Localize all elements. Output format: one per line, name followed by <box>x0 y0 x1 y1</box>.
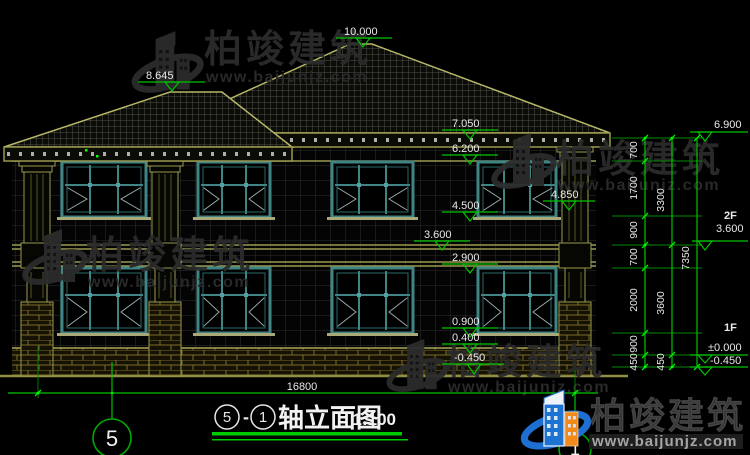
brand-logo-icon <box>131 31 204 96</box>
elevation-drawing-canvas: 柏竣建筑 www.baijunjz.com 柏竣建筑 www.baijunjz.… <box>0 0 750 455</box>
dim-label: 900 <box>628 335 640 353</box>
level-label: -0.450 <box>710 355 741 367</box>
dim-label: 7350 <box>680 246 692 270</box>
logo-wing <box>565 412 578 446</box>
level-label: 4.500 <box>452 200 480 212</box>
window <box>62 162 146 217</box>
title-underline-thick <box>212 432 402 436</box>
building-elevation <box>0 44 628 376</box>
watermark-url-text: www.baijunjz.com <box>87 274 250 291</box>
level-label: 6.900 <box>714 119 742 131</box>
brand-url-text: www.baijunjz.com <box>591 433 737 450</box>
level-label: 0.900 <box>452 316 480 328</box>
floor-tag: 1F <box>724 322 737 334</box>
dim-label: 700 <box>628 248 640 266</box>
window <box>332 162 413 217</box>
level-label: -0.450 <box>454 352 485 364</box>
total-width-label: 16800 <box>287 381 318 393</box>
level-label: 0.400 <box>452 332 480 344</box>
dim-label: 450 <box>655 353 667 371</box>
watermark-left: 柏竣建筑 www.baijunjz.com <box>22 229 254 291</box>
drawing-title: 5 - 1 轴立面图 1:100 <box>212 403 408 441</box>
watermark-bottom: 柏竣建筑 www.baijunjz.com <box>386 339 610 396</box>
title-underline-thin <box>212 439 408 441</box>
dim-label: 3600 <box>655 291 667 315</box>
title-scale: 1:100 <box>353 410 396 429</box>
level-label: 4.850 <box>551 189 579 201</box>
level-label: 3.600 <box>424 229 452 241</box>
level-label: 3.600 <box>716 223 744 235</box>
title-axis-a: 5 <box>223 409 231 426</box>
level-label: 7.050 <box>452 118 480 130</box>
watermark-brand-text: 柏竣建筑 <box>556 139 724 181</box>
level-label: ±0.000 <box>708 342 742 354</box>
watermark-url-text: www.baijunjz.com <box>205 69 368 86</box>
window <box>332 268 413 333</box>
cad-elevation-screenshot: 柏竣建筑 www.baijunjz.com 柏竣建筑 www.baijunjz.… <box>0 0 750 455</box>
level-label: 10.000 <box>344 26 378 38</box>
dim-label: 700 <box>628 141 640 159</box>
dim-label: 2000 <box>628 288 640 312</box>
floor-tag: 2F <box>724 210 737 222</box>
level-label: 2.900 <box>452 252 480 264</box>
title-axis-b: 1 <box>259 409 267 426</box>
watermark-brand-text: 柏竣建筑 <box>86 235 254 277</box>
level-label: 6.200 <box>452 143 480 155</box>
level-label: 8.645 <box>146 70 174 82</box>
watermark-right: 柏竣建筑 www.baijunjz.com <box>491 133 724 194</box>
window <box>198 162 270 217</box>
brand-name-text: 柏竣建筑 <box>590 395 746 436</box>
dim-label: 900 <box>628 221 640 239</box>
brand-logo-colored: 柏竣建筑 www.baijunjz.com <box>521 390 746 453</box>
axis-number: 5 <box>106 426 118 451</box>
dim-label: 450 <box>628 353 640 371</box>
dim-label: 3300 <box>655 188 667 212</box>
title-separator: - <box>243 407 249 427</box>
dim-label: 1700 <box>628 176 640 200</box>
window <box>478 268 556 333</box>
